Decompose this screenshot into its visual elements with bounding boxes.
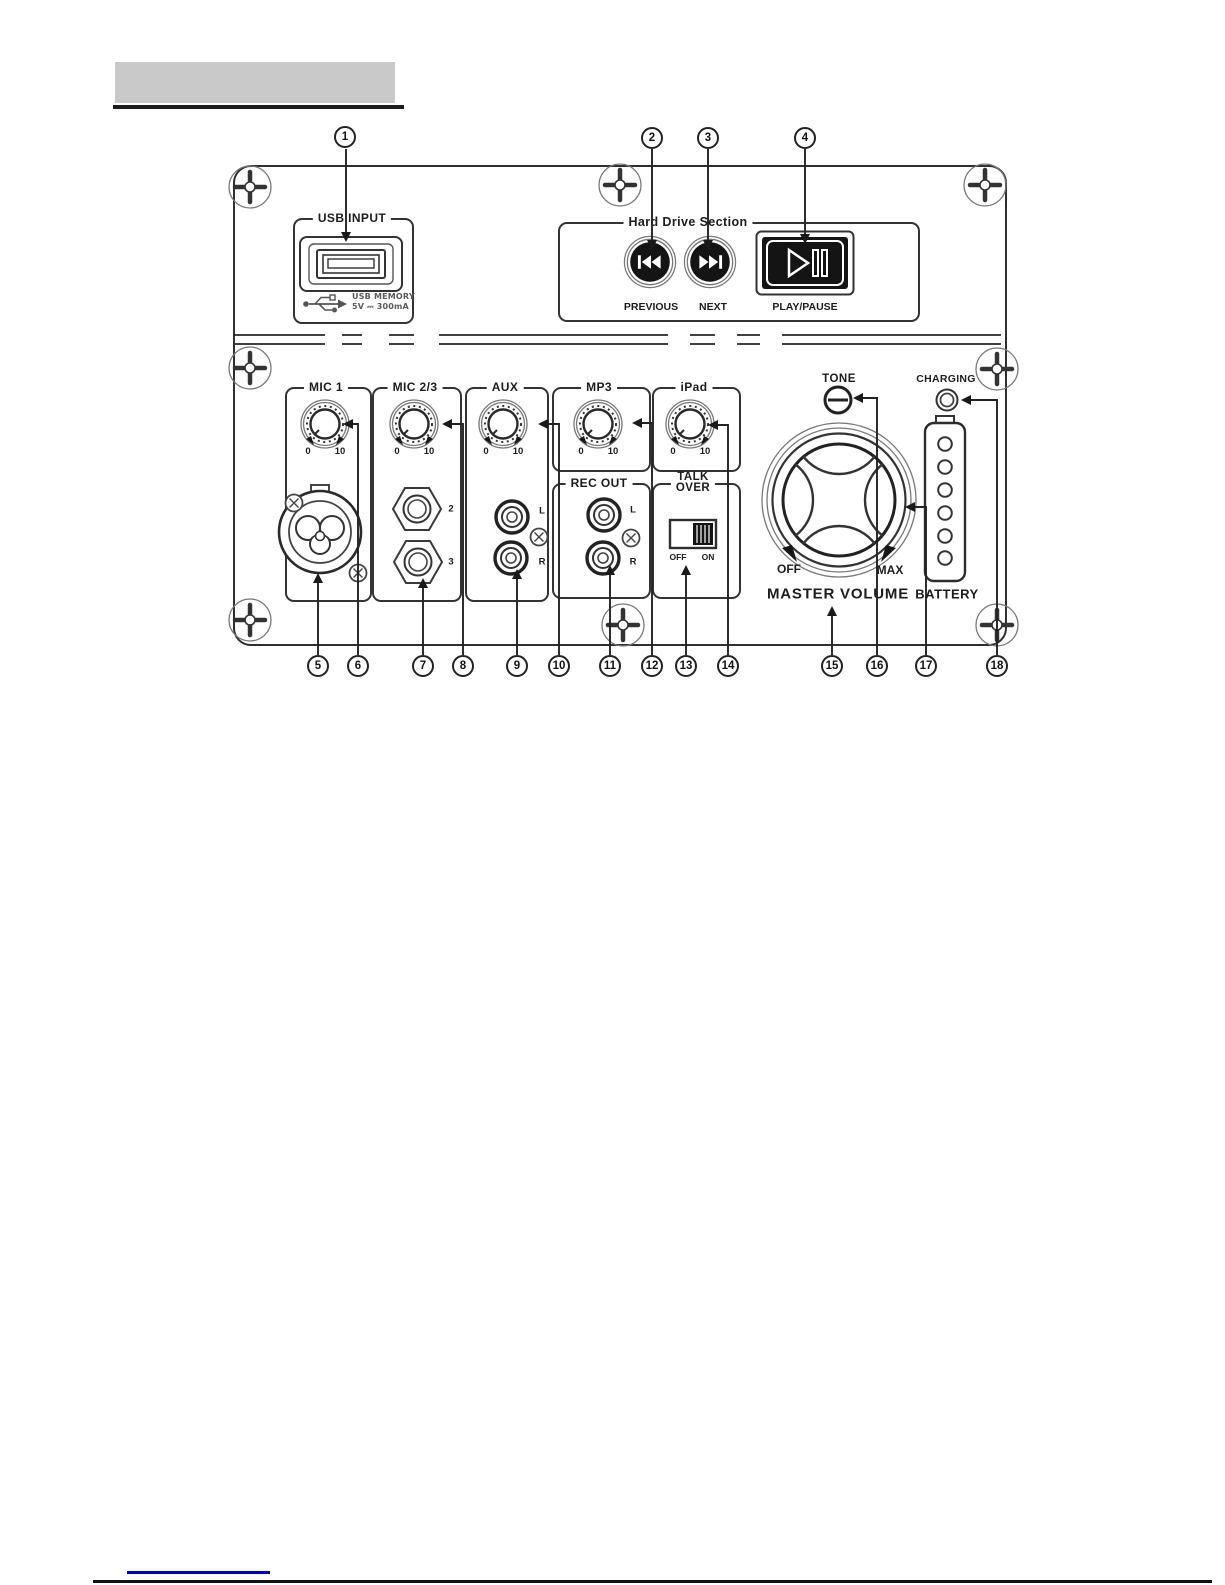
divider-segment	[342, 334, 362, 345]
aux-right-label: R	[539, 557, 546, 568]
tone-label: TONE	[822, 373, 856, 385]
svg-text:0: 0	[483, 446, 488, 456]
callout-1: 1	[334, 126, 356, 148]
mic1-legend: MIC 1	[304, 380, 348, 394]
screw-icon	[227, 597, 273, 643]
mic2-jack	[391, 486, 443, 532]
divider-segment	[737, 334, 760, 345]
mic2-jack-label: 2	[448, 504, 453, 515]
battery-indicator	[922, 414, 968, 586]
hard-drive-section	[558, 222, 920, 322]
svg-text:0: 0	[394, 446, 399, 456]
redacted-title-block	[115, 62, 395, 103]
divider-segment	[782, 334, 1001, 345]
callout-10: 10	[548, 655, 570, 677]
thumb-screw-icon	[528, 526, 550, 548]
svg-text:10: 10	[700, 446, 711, 456]
play-pause-label: PLAY/PAUSE	[772, 301, 837, 313]
talk-over-legend: TALK OVER	[671, 472, 715, 494]
master-volume-knob	[754, 415, 924, 585]
mic23-level-knob: 0 10	[382, 398, 446, 456]
rec-out-right-label: R	[630, 557, 637, 568]
aux-legend: AUX	[487, 380, 524, 394]
svg-text:10: 10	[424, 446, 435, 456]
divider-segment	[389, 334, 414, 345]
play-pause-button	[755, 230, 855, 296]
screw-icon	[962, 162, 1008, 208]
talk-over-on-label: ON	[702, 552, 715, 562]
rec-out-left-label: L	[630, 505, 636, 516]
screw-icon	[227, 164, 273, 210]
manual-page: USB INPUT USB MEMORY 5V ⎓ 300mA Hard Dri…	[0, 0, 1225, 1585]
callout-3: 3	[697, 127, 719, 149]
callout-17: 17	[915, 655, 937, 677]
callout-8: 8	[452, 655, 474, 677]
charging-label: CHARGING	[916, 373, 976, 385]
master-off-label: OFF	[777, 562, 801, 576]
divider-segment	[690, 334, 715, 345]
usb-section-legend: USB INPUT	[313, 211, 391, 225]
usb-memory-text: USB MEMORY 5V ⎓ 300mA	[352, 292, 415, 312]
callout-15: 15	[821, 655, 843, 677]
callout-4: 4	[794, 127, 816, 149]
callout-7: 7	[412, 655, 434, 677]
title-underline	[113, 105, 404, 109]
mic1-level-knob: 0 10	[293, 398, 357, 456]
aux-level-knob: 0 10	[471, 398, 535, 456]
screw-icon	[600, 602, 646, 648]
rec-out-legend: REC OUT	[566, 476, 633, 490]
next-button	[682, 234, 738, 290]
page-bottom-rule	[93, 1580, 1212, 1583]
divider-segment	[235, 334, 325, 345]
tone-trimmer	[821, 383, 855, 417]
mic3-jack-label: 3	[448, 557, 453, 568]
next-label: NEXT	[699, 301, 727, 313]
callout-16: 16	[866, 655, 888, 677]
talk-over-switch	[668, 518, 718, 550]
callout-2: 2	[641, 127, 663, 149]
mic3-jack	[392, 539, 444, 585]
screw-icon	[597, 162, 643, 208]
thumb-screw-icon	[283, 492, 305, 514]
svg-text:10: 10	[335, 446, 346, 456]
divider-segment	[439, 334, 668, 345]
hard-drive-section-legend: Hard Drive Section	[623, 215, 752, 229]
usb-port	[298, 235, 404, 293]
screw-icon	[974, 602, 1020, 648]
svg-text:10: 10	[513, 446, 524, 456]
battery-label: BATTERY	[915, 587, 978, 602]
usb-memory-icon	[301, 290, 349, 316]
svg-text:0: 0	[305, 446, 310, 456]
screw-icon	[227, 345, 273, 391]
thumb-screw-icon	[347, 562, 369, 584]
rec-out-right-rca-jack	[583, 538, 623, 578]
callout-18: 18	[986, 655, 1008, 677]
svg-text:10: 10	[608, 446, 619, 456]
callout-12: 12	[641, 655, 663, 677]
callout-5: 5	[307, 655, 329, 677]
aux-right-rca-jack	[491, 538, 531, 578]
ipad-legend: iPad	[676, 380, 713, 394]
screw-icon	[974, 346, 1020, 392]
callout-9: 9	[506, 655, 528, 677]
master-max-label: MAX	[877, 563, 904, 577]
aux-left-label: L	[539, 506, 545, 517]
aux-left-rca-jack	[492, 497, 532, 537]
mic23-legend: MIC 2/3	[388, 380, 443, 394]
svg-text:0: 0	[670, 446, 675, 456]
svg-text:0: 0	[578, 446, 583, 456]
rec-out-left-rca-jack	[584, 495, 624, 535]
callout-6: 6	[347, 655, 369, 677]
thumb-screw-icon	[620, 527, 642, 549]
ipad-level-knob: 0 10	[658, 398, 722, 456]
talk-over-off-label: OFF	[670, 552, 687, 562]
master-volume-label: MASTER VOLUME	[767, 586, 909, 603]
callout-11: 11	[599, 655, 621, 677]
previous-button	[622, 234, 678, 290]
previous-label: PREVIOUS	[624, 301, 678, 313]
mp3-level-knob: 0 10	[566, 398, 630, 456]
callout-13: 13	[675, 655, 697, 677]
link-underline[interactable]	[127, 1571, 270, 1574]
mp3-legend: MP3	[581, 380, 617, 394]
charging-led	[934, 387, 960, 413]
callout-14: 14	[717, 655, 739, 677]
